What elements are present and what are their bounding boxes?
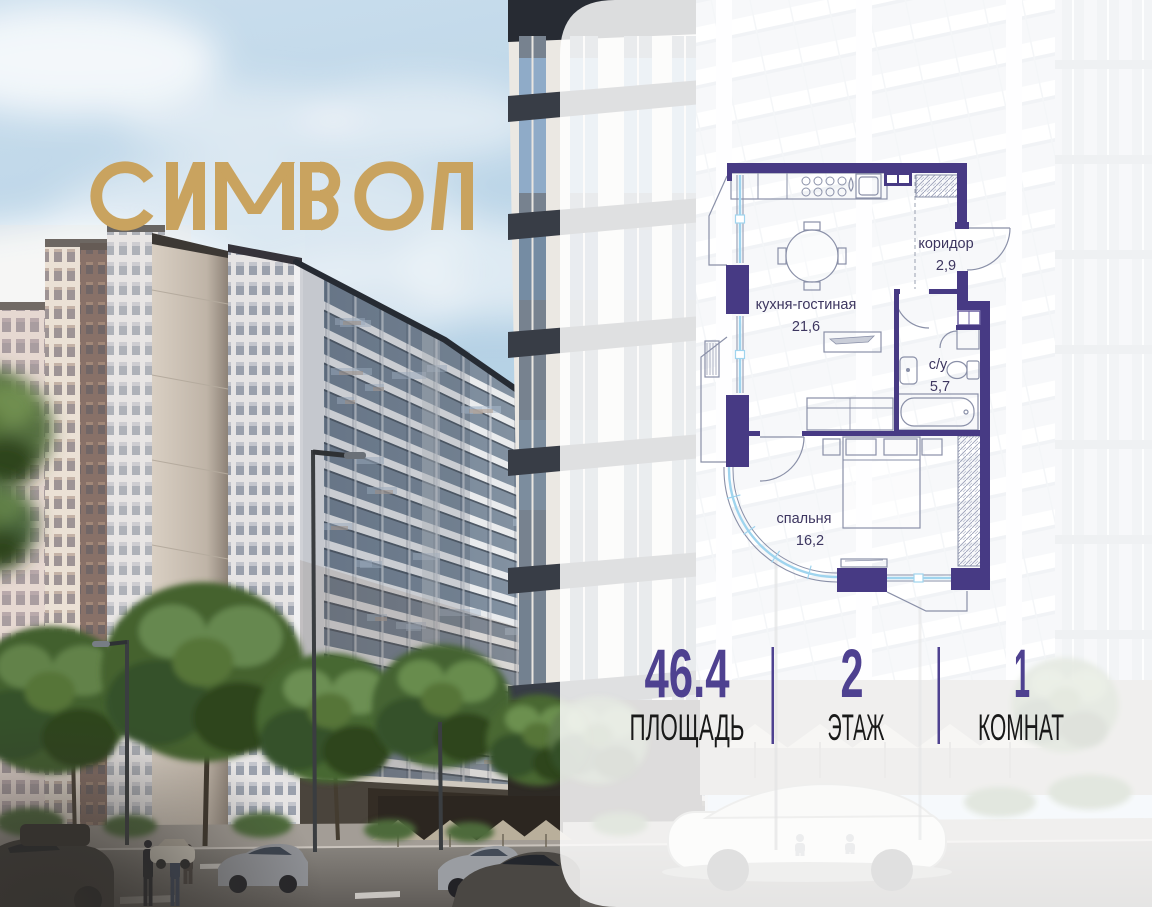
svg-text:ПЛОЩАДЬ: ПЛОЩАДЬ: [630, 706, 745, 748]
svg-text:кухня-гостиная: кухня-гостиная: [756, 297, 857, 313]
svg-text:2: 2: [841, 635, 864, 712]
svg-text:коридор: коридор: [918, 236, 973, 252]
svg-text:21,6: 21,6: [792, 319, 820, 335]
svg-text:1: 1: [1014, 635, 1030, 712]
svg-text:с/у: с/у: [929, 357, 948, 373]
svg-text:46.4: 46.4: [645, 635, 730, 712]
svg-text:ЭТАЖ: ЭТАЖ: [828, 706, 885, 748]
svg-text:5,7: 5,7: [930, 379, 950, 395]
svg-text:КОМНАТ: КОМНАТ: [978, 706, 1064, 748]
svg-text:2,9: 2,9: [936, 258, 956, 274]
svg-text:16,2: 16,2: [796, 533, 824, 549]
svg-text:спальня: спальня: [776, 511, 831, 527]
